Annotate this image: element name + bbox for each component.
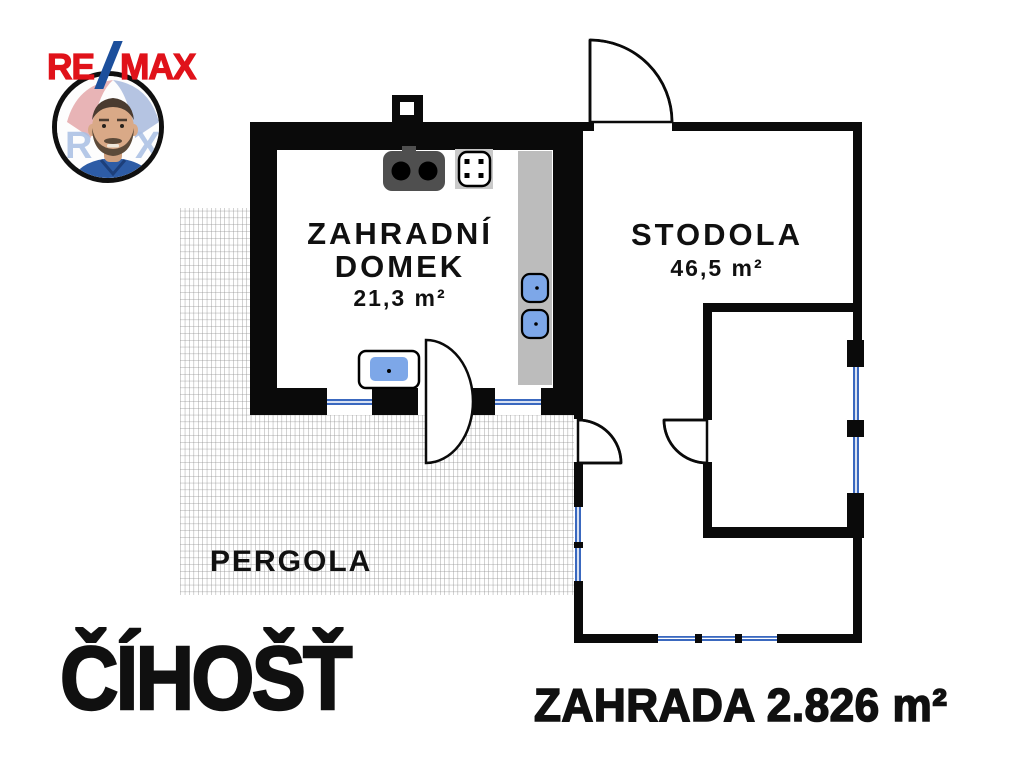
chimney-flue [400, 102, 414, 115]
door-swing [590, 40, 672, 122]
door-swing [664, 420, 707, 463]
floorplan-page: RE MAX R X [0, 0, 1024, 768]
garden-house-area: 21,3 m² [353, 285, 446, 311]
sink-icon [359, 351, 419, 388]
agent-eye [120, 124, 124, 128]
agent-mustache [104, 138, 122, 144]
agent-smile [107, 144, 119, 148]
agent-eye [102, 124, 106, 128]
garden-house-label-line1: ZAHRADNÍ [307, 216, 493, 251]
garden-house-window [495, 399, 541, 405]
stool-icon [522, 310, 548, 338]
remax-max-text: MAX [120, 49, 195, 85]
garden-house-label-line2: DOMEK [335, 249, 465, 284]
garden-house-window [327, 399, 372, 405]
remax-logo: RE MAX [47, 45, 197, 89]
remax-re-text: RE [47, 49, 94, 85]
barn-window [658, 636, 777, 641]
barn-label: STODOLA [631, 217, 803, 252]
pergola-label: PERGOLA [210, 545, 372, 578]
stool-icon [522, 274, 548, 302]
cooktop-icon [455, 149, 493, 189]
remax-slash-icon [94, 41, 122, 89]
stove-icon [383, 146, 445, 191]
location-title: ČÍHOŠŤ [60, 634, 350, 724]
kitchen-counter [518, 151, 552, 385]
annex-walls [703, 303, 862, 538]
door-swing [578, 420, 621, 463]
garden-area-text: ZAHRADA 2.826 m² [534, 682, 947, 728]
barn-walls [574, 122, 864, 643]
barn-area: 46,5 m² [670, 255, 763, 281]
